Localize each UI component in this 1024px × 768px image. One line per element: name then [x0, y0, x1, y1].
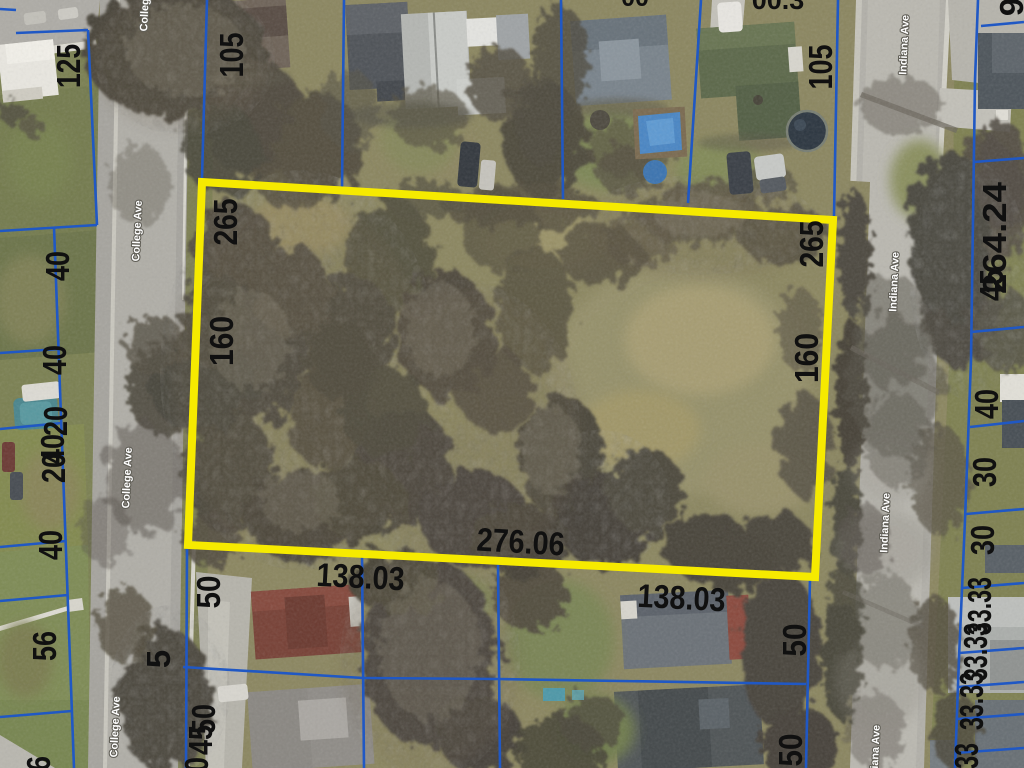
svg-text:265: 265 [207, 199, 244, 246]
svg-text:50: 50 [772, 734, 809, 767]
svg-text:20: 20 [37, 406, 74, 436]
svg-text:45: 45 [182, 725, 219, 755]
svg-text:105: 105 [213, 33, 250, 78]
svg-text:138.03: 138.03 [637, 577, 727, 619]
svg-text:40: 40 [968, 389, 1005, 419]
svg-text:105: 105 [802, 45, 839, 90]
svg-text:50: 50 [178, 757, 215, 768]
svg-text:160: 160 [788, 333, 825, 383]
svg-text:40: 40 [39, 251, 76, 281]
svg-text:20: 20 [35, 453, 72, 483]
svg-text:50: 50 [776, 624, 813, 657]
svg-text:5: 5 [140, 650, 177, 668]
svg-text:125: 125 [50, 44, 87, 88]
svg-text:40: 40 [32, 530, 69, 560]
svg-text:33.33: 33.33 [953, 672, 990, 730]
svg-text:Indiana Ave: Indiana Ave [868, 725, 883, 768]
svg-text:9: 9 [993, 0, 1024, 16]
svg-text:138.03: 138.03 [316, 556, 406, 598]
svg-text:276.06: 276.06 [476, 521, 566, 563]
svg-text:56: 56 [20, 756, 57, 768]
svg-text:00.3: 00.3 [752, 0, 805, 15]
svg-text:56: 56 [26, 631, 63, 661]
svg-text:45: 45 [973, 269, 1010, 301]
svg-text:33.33: 33.33 [948, 743, 985, 768]
svg-text:40: 40 [36, 345, 73, 375]
svg-text:30: 30 [966, 457, 1003, 487]
svg-text:00: 00 [621, 0, 649, 12]
svg-text:265: 265 [793, 221, 830, 268]
svg-text:50: 50 [190, 576, 227, 609]
svg-text:160: 160 [203, 316, 240, 366]
svg-text:30: 30 [964, 525, 1001, 555]
